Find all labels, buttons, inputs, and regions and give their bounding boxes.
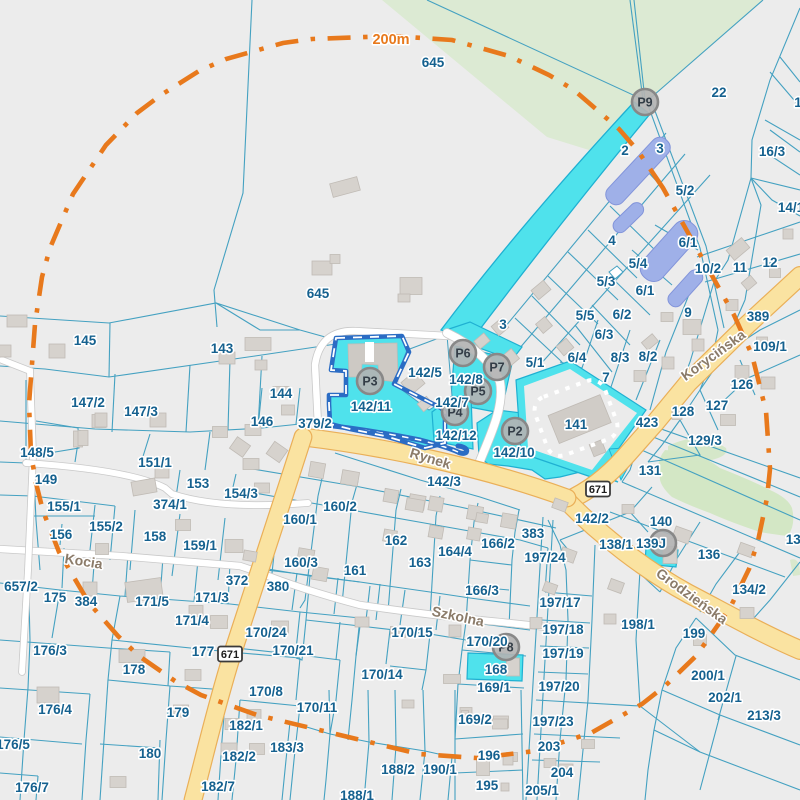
svg-text:161: 161 [344, 563, 367, 578]
svg-text:146: 146 [251, 414, 274, 429]
svg-text:178: 178 [123, 662, 146, 677]
svg-text:423: 423 [636, 415, 659, 430]
svg-text:168: 168 [485, 662, 508, 677]
svg-text:142/11: 142/11 [351, 399, 392, 414]
svg-text:205/1: 205/1 [525, 783, 559, 798]
svg-text:5/2: 5/2 [676, 183, 695, 198]
svg-text:170/20: 170/20 [466, 634, 507, 649]
svg-text:132: 132 [786, 532, 800, 547]
svg-text:5/4: 5/4 [629, 256, 648, 271]
svg-text:142/7: 142/7 [435, 395, 469, 410]
svg-text:6/1: 6/1 [679, 235, 698, 250]
svg-text:170/8: 170/8 [249, 684, 283, 699]
svg-text:202/1: 202/1 [708, 690, 742, 705]
svg-text:163: 163 [409, 555, 432, 570]
svg-text:166/3: 166/3 [465, 583, 499, 598]
svg-text:384: 384 [75, 594, 98, 609]
svg-text:142/8: 142/8 [449, 372, 483, 387]
svg-text:203: 203 [538, 739, 561, 754]
svg-text:657/2: 657/2 [4, 579, 38, 594]
svg-text:170/21: 170/21 [272, 643, 314, 658]
svg-text:4: 4 [608, 233, 616, 248]
svg-text:198/1: 198/1 [621, 617, 655, 632]
svg-text:136: 136 [698, 547, 721, 562]
svg-text:671: 671 [221, 649, 239, 661]
svg-text:151/1: 151/1 [138, 455, 172, 470]
svg-text:7: 7 [602, 370, 610, 385]
svg-text:1: 1 [794, 95, 800, 110]
svg-text:143: 143 [211, 341, 234, 356]
svg-text:182/1: 182/1 [229, 718, 263, 733]
svg-text:196: 196 [478, 748, 501, 763]
svg-text:12: 12 [762, 255, 777, 270]
svg-text:383: 383 [522, 526, 545, 541]
svg-text:645: 645 [307, 286, 330, 301]
svg-text:142/2: 142/2 [575, 511, 609, 526]
svg-text:156: 156 [50, 527, 73, 542]
svg-text:148/5: 148/5 [20, 445, 54, 460]
svg-text:372: 372 [226, 573, 249, 588]
svg-text:197/17: 197/17 [539, 595, 580, 610]
svg-text:140: 140 [650, 514, 673, 529]
svg-text:170/14: 170/14 [361, 667, 403, 682]
svg-text:10/2: 10/2 [695, 261, 721, 276]
svg-text:389: 389 [747, 309, 770, 324]
svg-text:P3: P3 [362, 375, 377, 389]
svg-text:175: 175 [44, 590, 67, 605]
svg-text:190/1: 190/1 [423, 762, 457, 777]
svg-text:6/1: 6/1 [636, 283, 655, 298]
svg-text:204: 204 [551, 765, 574, 780]
svg-text:160/3: 160/3 [284, 555, 318, 570]
svg-text:197/24: 197/24 [524, 550, 566, 565]
svg-text:5/1: 5/1 [526, 355, 545, 370]
svg-text:182/7: 182/7 [201, 779, 235, 794]
svg-text:197/23: 197/23 [532, 714, 574, 729]
svg-text:188/2: 188/2 [381, 762, 415, 777]
svg-text:11: 11 [733, 260, 748, 275]
svg-text:200/1: 200/1 [691, 668, 725, 683]
svg-text:200m: 200m [372, 32, 409, 48]
svg-text:147/3: 147/3 [124, 404, 158, 419]
svg-text:380: 380 [267, 579, 290, 594]
svg-text:144: 144 [270, 386, 293, 401]
svg-text:182/2: 182/2 [222, 749, 256, 764]
svg-text:P2: P2 [507, 425, 522, 439]
svg-text:183/3: 183/3 [270, 740, 304, 755]
svg-text:160/2: 160/2 [323, 499, 357, 514]
svg-text:14/1: 14/1 [778, 200, 800, 215]
svg-text:179: 179 [167, 705, 190, 720]
svg-text:671: 671 [589, 484, 607, 496]
svg-text:180: 180 [139, 746, 162, 761]
svg-text:134/2: 134/2 [732, 582, 766, 597]
svg-text:3: 3 [656, 141, 664, 156]
svg-text:197/18: 197/18 [542, 622, 584, 637]
svg-text:213/3: 213/3 [747, 708, 781, 723]
svg-text:142/10: 142/10 [493, 445, 534, 460]
svg-text:176/7: 176/7 [15, 780, 49, 795]
svg-text:109/1: 109/1 [753, 339, 787, 354]
svg-text:127: 127 [706, 398, 729, 413]
svg-text:P7: P7 [489, 361, 504, 375]
svg-text:142/3: 142/3 [427, 474, 461, 489]
svg-text:159/1: 159/1 [183, 538, 217, 553]
svg-text:16/3: 16/3 [759, 144, 786, 159]
svg-text:379/2: 379/2 [298, 416, 332, 431]
svg-text:8/2: 8/2 [639, 349, 658, 364]
svg-text:128: 128 [672, 404, 695, 419]
svg-text:6/2: 6/2 [613, 307, 632, 322]
svg-text:145: 145 [74, 333, 97, 348]
svg-text:138/1: 138/1 [599, 537, 633, 552]
svg-text:142/5: 142/5 [408, 365, 442, 380]
svg-text:155/1: 155/1 [47, 499, 81, 514]
svg-text:22: 22 [711, 85, 726, 100]
svg-text:129/3: 129/3 [688, 433, 722, 448]
svg-text:166/2: 166/2 [481, 536, 515, 551]
svg-text:155/2: 155/2 [89, 519, 123, 534]
svg-text:164/4: 164/4 [438, 544, 472, 559]
svg-text:170/11: 170/11 [297, 700, 338, 715]
svg-text:139J: 139J [636, 536, 666, 551]
svg-text:197/20: 197/20 [538, 679, 579, 694]
svg-text:142/12: 142/12 [435, 428, 476, 443]
svg-text:188/1: 188/1 [340, 788, 374, 800]
svg-text:169/1: 169/1 [477, 680, 511, 695]
svg-text:195: 195 [476, 778, 499, 793]
svg-text:153: 153 [187, 476, 210, 491]
svg-text:P6: P6 [455, 347, 470, 361]
svg-text:177: 177 [192, 644, 215, 659]
svg-text:645: 645 [422, 55, 445, 70]
svg-text:171/5: 171/5 [135, 594, 169, 609]
svg-text:6/3: 6/3 [595, 327, 614, 342]
svg-text:374/1: 374/1 [153, 497, 187, 512]
svg-text:171/4: 171/4 [175, 613, 209, 628]
svg-text:176/3: 176/3 [33, 643, 67, 658]
svg-text:6/4: 6/4 [568, 350, 587, 365]
svg-text:154/3: 154/3 [224, 486, 258, 501]
svg-text:176/5: 176/5 [0, 737, 30, 752]
svg-text:147/2: 147/2 [71, 395, 105, 410]
svg-text:P9: P9 [637, 96, 652, 110]
svg-text:3: 3 [499, 317, 507, 332]
svg-text:158: 158 [144, 529, 167, 544]
svg-text:2: 2 [621, 143, 629, 158]
svg-text:160/1: 160/1 [283, 512, 317, 527]
svg-text:131: 131 [639, 463, 662, 478]
svg-text:9: 9 [684, 305, 692, 320]
svg-text:126: 126 [731, 377, 754, 392]
svg-text:171/3: 171/3 [195, 590, 229, 605]
svg-text:169/2: 169/2 [458, 712, 492, 727]
svg-text:5/5: 5/5 [576, 308, 595, 323]
svg-text:170/15: 170/15 [391, 625, 433, 640]
svg-text:176/4: 176/4 [38, 702, 72, 717]
svg-text:162: 162 [385, 533, 408, 548]
svg-text:8/3: 8/3 [611, 350, 630, 365]
svg-text:149: 149 [35, 472, 58, 487]
svg-text:141: 141 [565, 417, 588, 432]
svg-text:199: 199 [683, 626, 706, 641]
svg-text:170/24: 170/24 [245, 625, 287, 640]
svg-text:197/19: 197/19 [542, 646, 583, 661]
